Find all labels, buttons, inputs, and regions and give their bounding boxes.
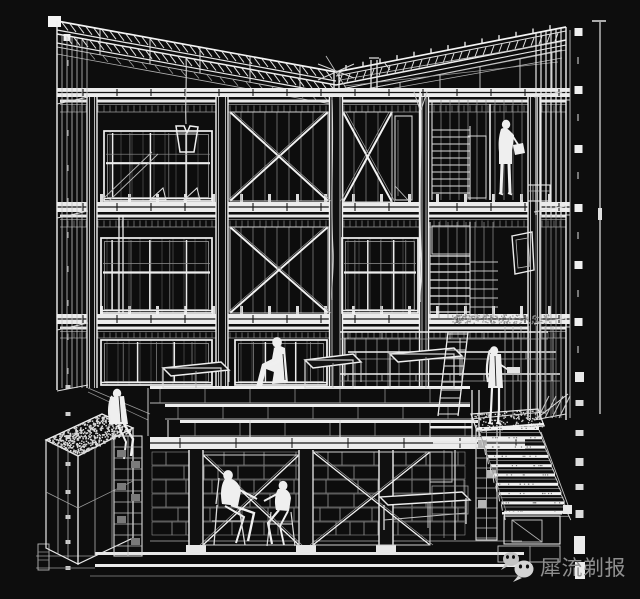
svg-text:犀流剃报: 犀流剃报 — [540, 557, 626, 580]
